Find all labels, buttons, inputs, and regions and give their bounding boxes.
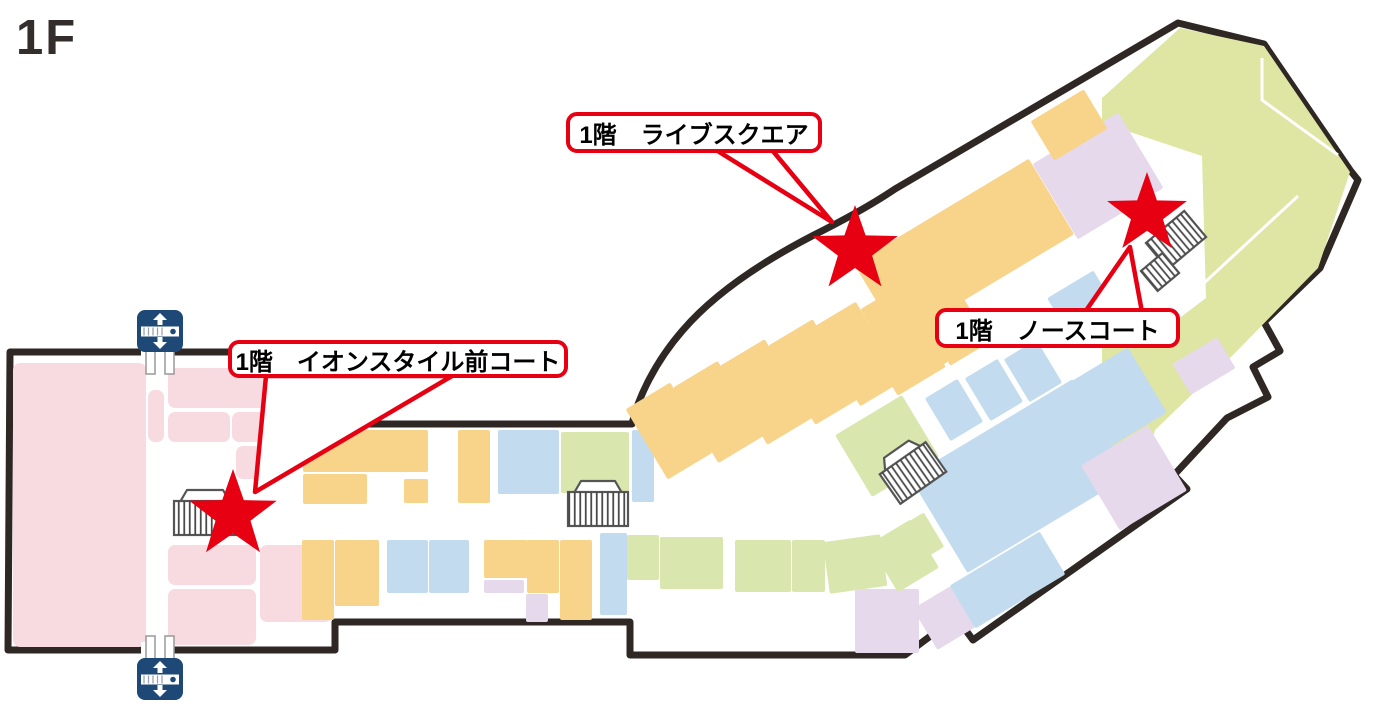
floor-map-page: 1F 1階 ライブスクエア 1階 ノースコート 1階 イオンスタイル前コート	[0, 0, 1373, 711]
store-block	[148, 390, 164, 442]
callout-north-court: 1階 ノースコート	[935, 308, 1180, 348]
store-block	[13, 363, 146, 647]
store-block	[527, 540, 559, 593]
store-block	[303, 474, 367, 504]
store-block	[168, 589, 256, 645]
store-block	[627, 535, 659, 580]
callout-live-square: 1階 ライブスクエア	[566, 112, 822, 153]
store-block	[484, 540, 528, 578]
store-block	[660, 537, 723, 589]
store-block	[855, 589, 919, 653]
callout-aeon-style-court: 1階 イオンスタイル前コート	[228, 340, 568, 378]
store-block	[526, 594, 548, 622]
floor-label: 1F	[16, 10, 77, 66]
callout-label: 1階 ライブスクエア	[579, 115, 808, 150]
callout-pointer	[716, 150, 832, 222]
store-block	[404, 479, 428, 503]
store-block	[302, 540, 334, 620]
stairs-icon	[568, 481, 628, 526]
floor-map	[0, 0, 1373, 711]
store-block	[168, 412, 230, 442]
callout-label: 1階 ノースコート	[955, 311, 1159, 346]
store-block	[458, 430, 490, 503]
store-block	[600, 533, 627, 615]
store-block	[429, 540, 469, 593]
store-block	[498, 430, 559, 494]
store-block	[335, 540, 379, 606]
store-block	[735, 540, 791, 592]
store-block	[484, 580, 524, 593]
store-block	[168, 545, 256, 585]
store-block	[792, 540, 825, 592]
store-block	[387, 540, 428, 593]
store-block	[560, 540, 592, 620]
callout-label: 1階 イオンスタイル前コート	[236, 342, 561, 377]
